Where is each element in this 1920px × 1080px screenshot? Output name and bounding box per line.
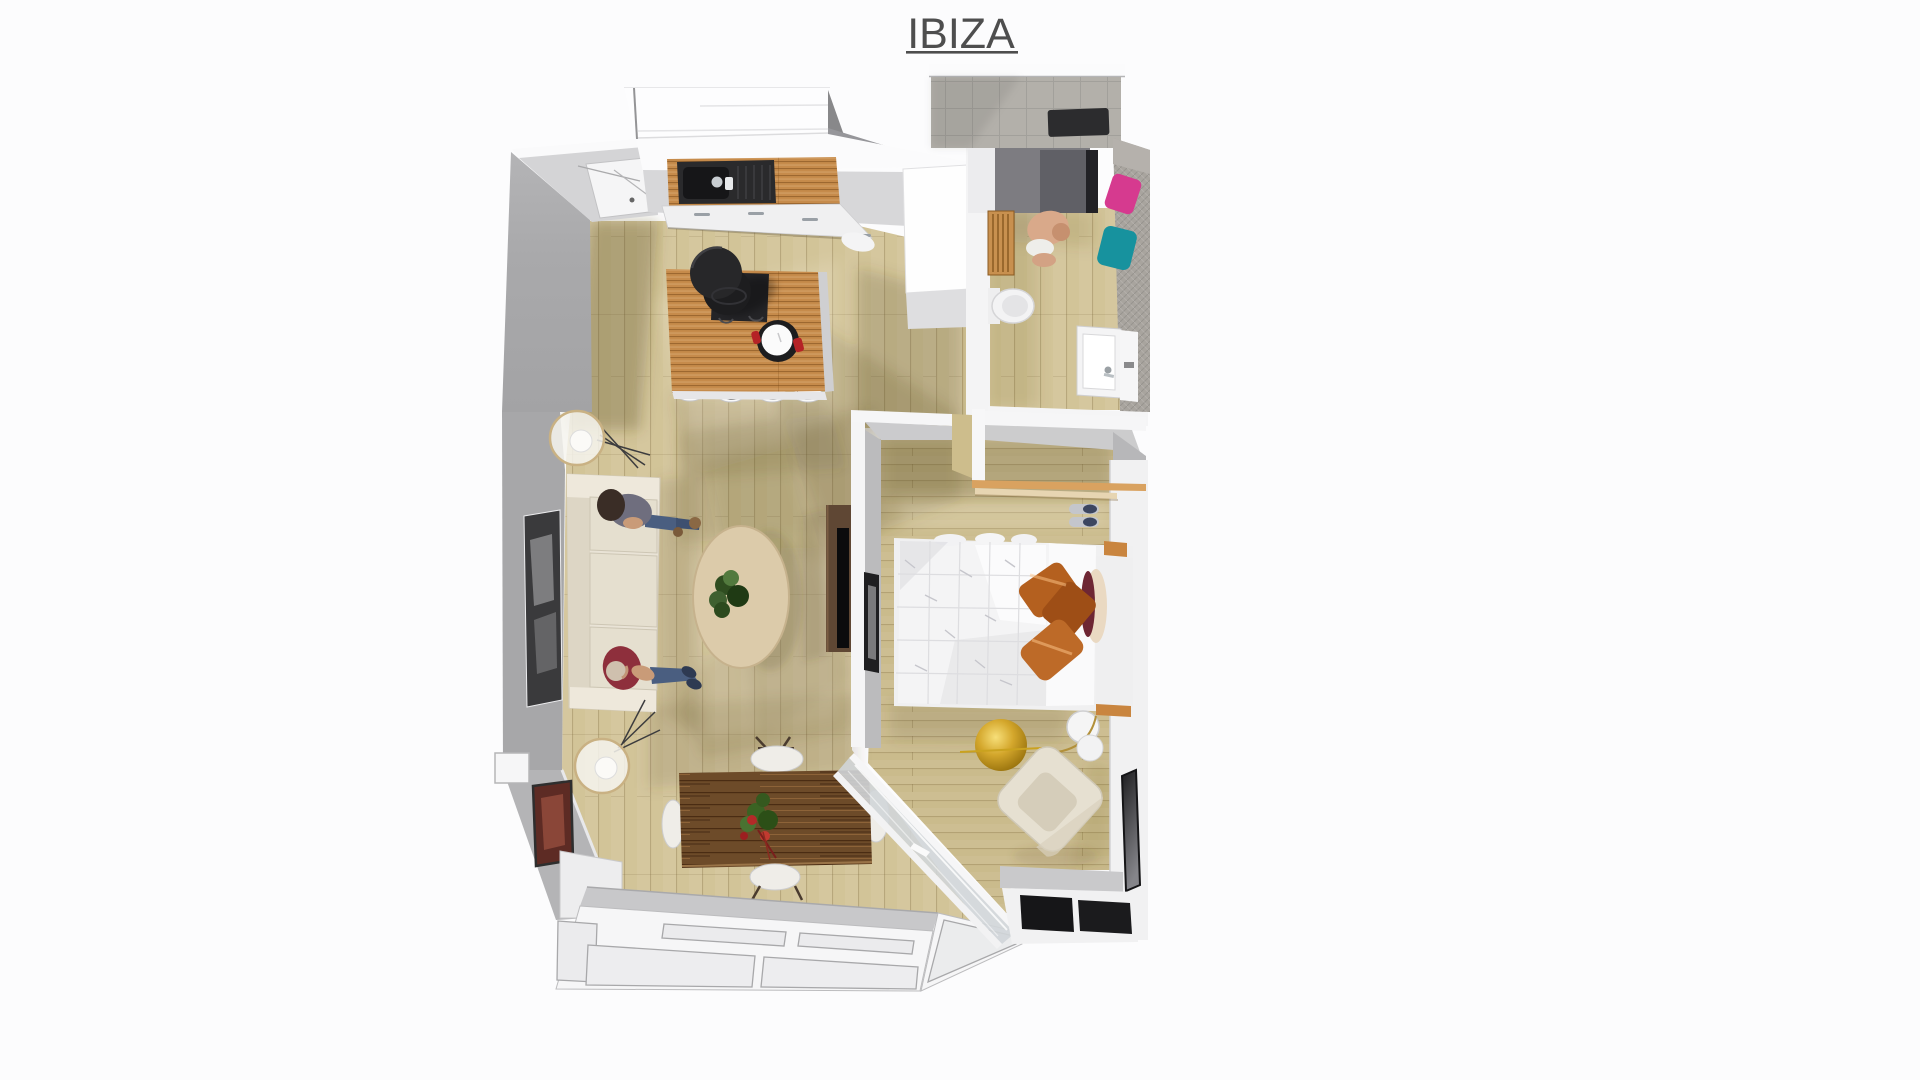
svg-text:IBIZA: IBIZA — [907, 10, 1015, 58]
